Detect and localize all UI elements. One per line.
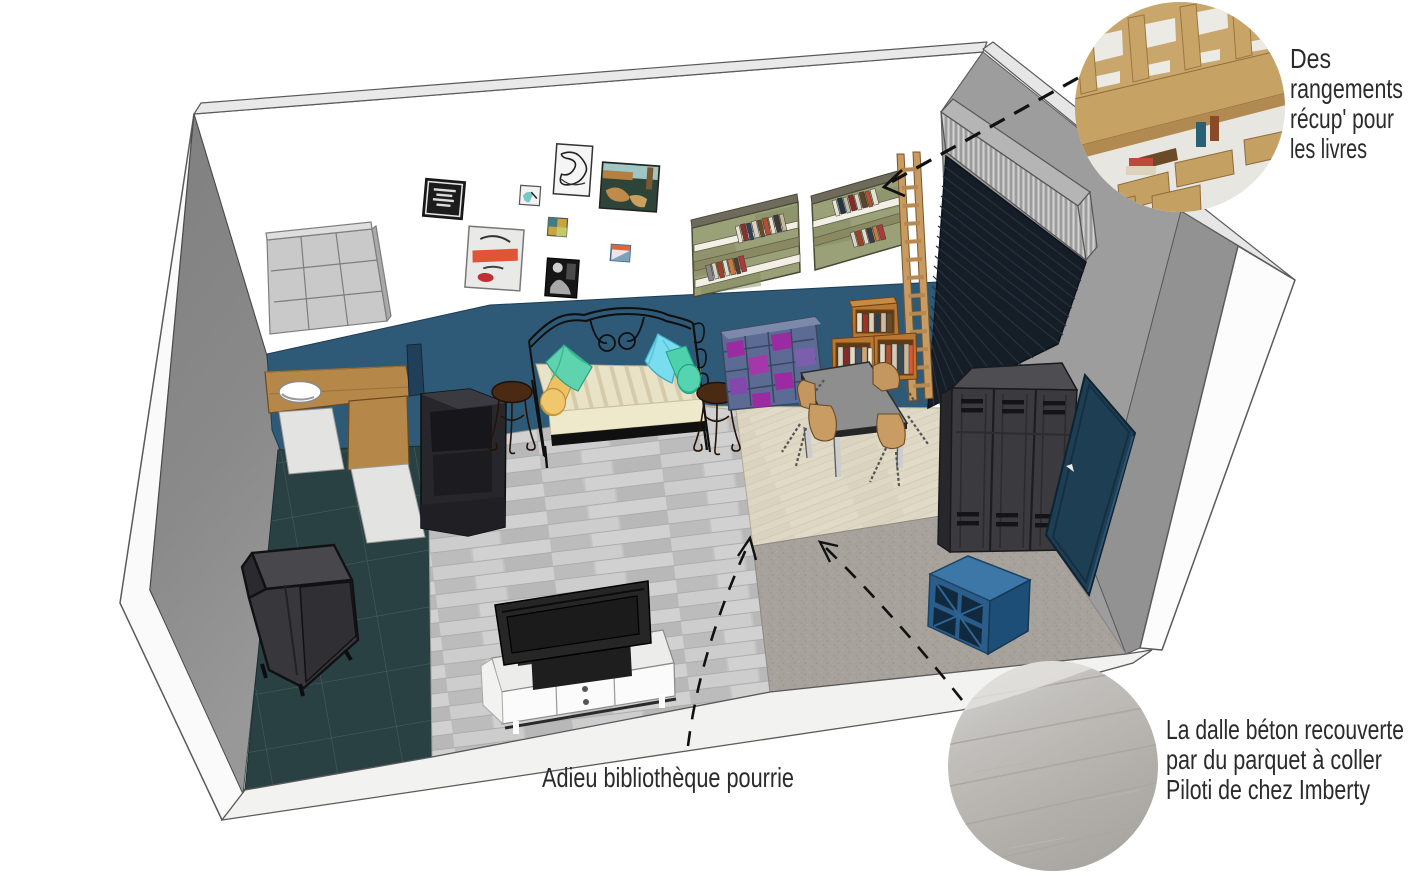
svg-text:Adieu bibliothèque pourrie: Adieu bibliothèque pourrie <box>542 762 794 793</box>
svg-text:récup' pour: récup' pour <box>1290 103 1394 134</box>
svg-text:La dalle béton recouverte: La dalle béton recouverte <box>1166 714 1404 745</box>
svg-text:Piloti de chez Imberty: Piloti de chez Imberty <box>1166 774 1370 805</box>
svg-text:par du parquet à coller: par du parquet à coller <box>1166 744 1382 775</box>
svg-text:Des: Des <box>1290 43 1331 74</box>
svg-text:rangements: rangements <box>1290 73 1403 104</box>
svg-text:les livres: les livres <box>1290 133 1367 164</box>
